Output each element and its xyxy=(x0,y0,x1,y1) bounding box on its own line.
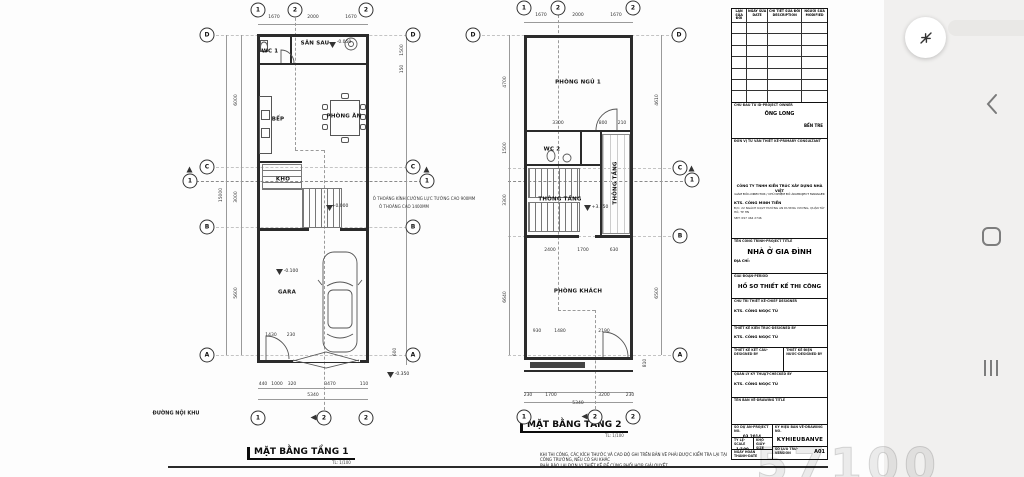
plan2-dim-label: 630 xyxy=(610,249,619,254)
plan2-grid-bubble-B: B xyxy=(673,229,688,244)
plan2-room-label: PHÒNG KHÁCH xyxy=(554,289,602,295)
plan2-dim-label: 2190 xyxy=(598,330,609,335)
plan1-line-segment xyxy=(366,34,369,363)
revision-header: CHI TIẾT SỬA ĐỔI DESCRIPTION xyxy=(768,9,802,22)
plan2-line-segment xyxy=(524,35,527,360)
plan2-line-segment xyxy=(528,168,580,198)
plan1-title: MẶT BẰNG TẦNG 1 xyxy=(247,447,355,460)
plan1-grid-bubble-1: 1 xyxy=(251,411,266,426)
section-arrow-icon xyxy=(688,166,694,172)
plan1-dim-label: 5600 xyxy=(235,287,240,298)
plan1-line-segment xyxy=(257,161,302,163)
period-label: GIAI ĐOẠN-PERIOD xyxy=(732,274,827,279)
revision-table: LẦN SỬA ĐỔINGÀY SỬA DATECHI TIẾT SỬA ĐỔI… xyxy=(732,9,827,102)
plan1-line-segment xyxy=(258,24,368,25)
plan2-room-label: THÔNG TẦNG xyxy=(538,197,581,203)
screenshot-root: 1670200016701500060003000560015001506001… xyxy=(0,0,1024,477)
door-arc xyxy=(596,109,617,130)
struct-label: THIẾT KẾ KẾT CẤU-DESIGNED BY xyxy=(732,348,783,357)
consultant-label: ĐƠN VỊ TƯ VẤN THIẾT KẾ-PRIMARY CONSULTAN… xyxy=(732,139,827,144)
revision-row xyxy=(732,90,827,101)
struct-mep-section: THIẾT KẾ KẾT CẤU-DESIGNED BY THIẾT KẾ ĐI… xyxy=(732,347,827,371)
plan1-grid-bubble-A: A xyxy=(406,348,421,363)
plan2-dim-label: 4700 xyxy=(504,76,509,87)
plan1-line-segment xyxy=(340,228,369,231)
collapse-fullscreen-button[interactable] xyxy=(905,17,946,58)
plan2-title: MẶT BẰNG TẦNG 2 xyxy=(520,420,628,433)
plan2-dim-label: 4610 xyxy=(656,94,661,105)
car-roof xyxy=(328,290,352,328)
plan1-lvl-label: -0.350 xyxy=(395,373,410,378)
plan2-dim-label: 3300 xyxy=(504,194,509,205)
plan2-grid-bubble-2: 2 xyxy=(626,410,641,425)
project-no-label: SỐ DỰ ÁN-PROJECT NO. xyxy=(732,425,772,434)
plan1-grid-bubble-1: 1 xyxy=(420,174,435,189)
plan2-line-segment xyxy=(595,235,633,238)
plan1-line-segment xyxy=(241,35,242,355)
scale-label: TỶ LỆ-SCALE xyxy=(732,438,753,447)
plan2-grid-bubble-2: 2 xyxy=(551,1,566,16)
plan2-dim-label: 6500 xyxy=(656,287,661,298)
plan2-dim-label: 1670 xyxy=(610,14,621,19)
plan2-lvl-label: +3.750 xyxy=(592,206,609,211)
plan1-line-segment xyxy=(322,124,328,130)
plan1-line-segment xyxy=(257,34,260,363)
plan-graphics xyxy=(0,0,1024,477)
plan2-grid-bubble-A: A xyxy=(673,348,688,363)
note-line: PHẢI BÁO LẠI ĐƠN VỊ THIẾT KẾ ĐỂ CÙNG PHỐ… xyxy=(540,463,735,468)
plan1-line-segment xyxy=(258,388,368,389)
plan2-grid-bubble-1: 1 xyxy=(685,173,700,188)
plan2-dim-label: 1480 xyxy=(554,330,565,335)
revision-row xyxy=(732,56,827,67)
revision-header: LẦN SỬA ĐỔI xyxy=(732,9,747,22)
plan2-grid-bubble-1: 1 xyxy=(517,1,532,16)
plan2-line-segment xyxy=(524,22,633,23)
plan1-room-label: SÂN SAU xyxy=(301,41,330,47)
plan1-line-segment xyxy=(360,104,366,110)
revision-header: NGƯỜI SỬA MODIFIED xyxy=(802,9,827,22)
plan1-grid-bubble-C: C xyxy=(200,160,215,175)
plan2-dim-label: 6640 xyxy=(504,291,509,302)
project-label: TÊN CÔNG TRÌNH-PROJECT TITLE xyxy=(732,239,827,244)
plan1-dim-label: 5340 xyxy=(307,394,318,399)
period-section: GIAI ĐOẠN-PERIOD HỒ SƠ THIẾT KẾ THI CÔNG xyxy=(732,273,827,298)
owner-name: ÔNG LONG xyxy=(732,111,827,117)
plan2-dim-label: 1700 xyxy=(577,249,588,254)
plan1-room-label: GARA xyxy=(278,290,296,296)
plan2-line-segment xyxy=(524,370,633,372)
nav-home-button[interactable] xyxy=(982,227,1001,246)
project-no-value: 03.2014 xyxy=(732,434,772,437)
plan1-grid-bubble-2: 2 xyxy=(359,411,374,426)
arch-name: KTS. CÔNG NGỌC TÚ xyxy=(734,334,825,339)
revision-row xyxy=(732,45,827,56)
collapse-arrows-icon xyxy=(916,28,936,48)
plan1-room-label: BẾP xyxy=(272,117,285,123)
plan1-line-segment xyxy=(261,110,270,120)
plan1-dim-label: 1500 xyxy=(401,44,406,55)
plan1-lvl-label: +0.000 xyxy=(332,205,349,210)
plan2-dim-label: 210 xyxy=(618,122,627,127)
plan2-line-segment xyxy=(528,202,580,232)
plan1-dim-label: 150 xyxy=(401,65,406,74)
plan2-dim-label: 1500 xyxy=(504,142,509,153)
period-name: HỒ SƠ THIẾT KẾ THI CÔNG xyxy=(732,284,827,290)
plan2-line-segment xyxy=(580,130,582,166)
plan1-street-label: ĐƯỜNG NỘI KHU xyxy=(153,412,200,417)
revision-row xyxy=(732,33,827,44)
plan2-grid-bubble-1: 1 xyxy=(517,410,532,425)
plan1-grid-bubble-B: B xyxy=(406,220,421,235)
plan1-dim-label: 110 xyxy=(360,383,369,388)
plan1-grid-bubble-2: 2 xyxy=(288,3,303,18)
plan2-dim-label: 230 xyxy=(524,394,533,399)
car-body xyxy=(323,252,357,352)
plan2-line-segment xyxy=(558,310,595,311)
plan1-note-label: Ô THOÁNG CAO 1400MM xyxy=(379,205,429,209)
nav-back-button[interactable] xyxy=(984,92,1002,116)
plan2-line-segment xyxy=(630,35,633,360)
plan2-line-segment xyxy=(530,362,585,368)
plan1-line-segment xyxy=(341,137,349,143)
section-arrow-icon xyxy=(311,415,317,421)
section-arrow-icon xyxy=(423,167,429,173)
plan1-line-segment xyxy=(360,124,366,130)
plan1-line-segment xyxy=(257,228,309,231)
plan1-dim-label: 15000 xyxy=(220,188,225,202)
plan1-grid-bubble-2: 2 xyxy=(317,411,332,426)
plan2-grid-bubble-2: 2 xyxy=(626,1,641,16)
plan2-room-label: WC 2 xyxy=(544,147,561,153)
plan2-grid-bubble-D: D xyxy=(466,28,481,43)
plan2-dim-label: 930 xyxy=(533,330,542,335)
plan1-dim-label: 1670 xyxy=(345,16,356,21)
drawing-title-label: TÊN BẢN VẼ-DRAWING TITLE xyxy=(732,398,827,403)
plan1-line-segment xyxy=(257,63,367,65)
toast-remnant xyxy=(948,20,1024,36)
note-line: KHI THI CÔNG, CÁC KÍCH THƯỚC VÀ CAO ĐỘ G… xyxy=(540,452,735,463)
plan2-line-segment xyxy=(524,357,633,360)
plan1-room-label: PHÒNG ĂN xyxy=(327,114,362,120)
plan1-line-segment xyxy=(341,93,349,99)
qa-label: QUẢN LÝ KỸ THUẬT-CHECKED BY xyxy=(732,372,827,377)
plan1-line-segment xyxy=(226,35,227,355)
plan1-line-segment xyxy=(258,399,368,400)
plan2-dim-label: 2000 xyxy=(572,14,583,19)
drawing-page[interactable]: 1670200016701500060003000560015001506001… xyxy=(0,0,884,477)
project-address-label: ĐỊA CHỈ: xyxy=(734,259,825,263)
plan1-line-segment xyxy=(216,355,412,356)
plan1-line-segment xyxy=(257,34,369,37)
owner-label: CHỦ ĐẦU TƯ ID-PROJECT OWNER xyxy=(732,103,827,108)
plan1-dim-label: 440 xyxy=(259,383,268,388)
plan1-line-segment xyxy=(290,34,292,65)
plan2-grid-bubble-C: C xyxy=(673,161,688,176)
plan1-line-segment xyxy=(322,104,328,110)
plan1-grid-bubble-C: C xyxy=(406,160,421,175)
qa-section: QUẢN LÝ KỸ THUẬT-CHECKED BY KTS. CÔNG NG… xyxy=(732,371,827,397)
plan2-dim-label: 1700 xyxy=(545,394,556,399)
plan2-line-segment xyxy=(524,164,602,166)
plan1-dim-label: 6000 xyxy=(235,94,240,105)
consultant-roles: GIÁM ĐỐC-DIRECTOR / CHỦ NHIỆM ĐỒ ÁN-PROJ… xyxy=(732,193,827,196)
consultant-architect: KTS. CÔNG MINH TIẾN xyxy=(734,200,825,205)
plan1-grid-bubble-D: D xyxy=(406,28,421,43)
plan1-grid-bubble-2: 2 xyxy=(359,3,374,18)
plan1-dim-label: 1430 xyxy=(265,334,276,339)
plan2-line-segment xyxy=(558,10,559,310)
plan1-lvl-label: -0.100 xyxy=(284,270,299,275)
owner-location: BẾN TRE xyxy=(732,123,827,128)
owner-section: CHỦ ĐẦU TƯ ID-PROJECT OWNER ÔNG LONG BẾN… xyxy=(732,102,827,139)
consultant-address: Đ/C: 22 NGÁCH 64/27 ĐƯỜNG AN DƯƠNG VƯƠNG… xyxy=(734,207,825,215)
revision-row xyxy=(732,22,827,33)
plan2-scale: TL: 1/100 xyxy=(605,433,624,438)
plan1-grid-bubble-D: D xyxy=(200,28,215,43)
title-block: LẦN SỬA ĐỔINGÀY SỬA DATECHI TIẾT SỬA ĐỔI… xyxy=(731,8,828,460)
plan2-dim-label: 2400 xyxy=(544,249,555,254)
plan1-room-label: KHO xyxy=(276,177,290,183)
project-name: NHÀ Ở GIA ĐÌNH xyxy=(732,248,827,256)
plan2-dim-label: 5340 xyxy=(572,402,583,407)
arch-design-section: THIẾT KẾ KIẾN TRÚC-DESIGNED BY KTS. CÔNG… xyxy=(732,325,827,348)
plan1-dim-label: 320 xyxy=(288,383,297,388)
drawing-title-section: TÊN BẢN VẼ-DRAWING TITLE xyxy=(732,397,827,424)
plan2-line-segment xyxy=(661,35,662,355)
plan1-line-segment xyxy=(216,167,412,168)
plan2-line-segment xyxy=(524,35,633,38)
plan2-dim-label: 3200 xyxy=(598,394,609,399)
plan1-dim-label: 1670 xyxy=(268,16,279,21)
plan1-line-segment xyxy=(257,362,369,363)
plan1-dim-label: 600 xyxy=(394,348,399,357)
arch-label: THIẾT KẾ KIẾN TRÚC-DESIGNED BY xyxy=(732,326,827,331)
plan1-line-segment xyxy=(295,150,324,151)
plan2-line-segment xyxy=(524,130,633,132)
plan1-dim-label: 1000 xyxy=(271,383,282,388)
plan1-grid-bubble-A: A xyxy=(200,348,215,363)
watermark-text: 57100 xyxy=(756,438,941,477)
plan1-lvl-label: -0.050 xyxy=(337,41,352,46)
android-side-panel xyxy=(884,0,1024,477)
plan1-line-segment xyxy=(196,181,432,182)
section-arrow-icon xyxy=(582,414,588,420)
plan2-room-label: PHÒNG NGỦ 1 xyxy=(555,80,601,86)
revision-header: NGÀY SỬA DATE xyxy=(747,9,768,22)
plan1-note-label: Ô THOÁNG KÍNH CƯỜNG LỰC TƯỜNG CAO 900MM xyxy=(373,197,475,201)
section-arrow-icon xyxy=(186,167,192,173)
revision-row xyxy=(732,68,827,79)
plan2-grid-bubble-D: D xyxy=(672,28,687,43)
cad-sheet: 1670200016701500060003000560015001506001… xyxy=(0,0,884,477)
plan1-room-label: WC 1 xyxy=(262,49,279,55)
plan2-dim-label: 1670 xyxy=(535,14,546,19)
nav-recents-button[interactable] xyxy=(984,360,998,376)
plan2-dim-label: 3300 xyxy=(552,122,563,127)
plan1-dim-label: 230 xyxy=(287,334,296,339)
plan1-dim-label: 3000 xyxy=(235,191,240,202)
plan2-line-segment xyxy=(524,392,633,393)
plan1-dim-label: 2000 xyxy=(307,16,318,21)
plan1-grid-bubble-B: B xyxy=(200,220,215,235)
consultant-phone: SĐT: 097 464 2746 xyxy=(734,217,825,221)
back-chevron-icon xyxy=(984,92,1000,116)
plan2-dim-label: 230 xyxy=(626,394,635,399)
chief-label: CHỦ TRÌ THIẾT KẾ-CHIEF DESIGNER xyxy=(732,299,827,304)
plan2-line-segment xyxy=(524,235,579,238)
plan1-scale: TL: 1/100 xyxy=(332,460,351,465)
door-arc xyxy=(281,50,294,63)
plan2-line-segment xyxy=(508,355,676,356)
plan2-dim-label: 800 xyxy=(599,122,608,127)
chief-designer-section: CHỦ TRÌ THIẾT KẾ-CHIEF DESIGNER KTS. CÔN… xyxy=(732,298,827,325)
plan1-dim-label: 3470 xyxy=(324,383,335,388)
plan2-dim-label: 810 xyxy=(644,359,649,368)
sink-icon xyxy=(563,154,571,162)
plan2-room-label: THÔNG TẦNG xyxy=(613,161,619,204)
plan1-grid-bubble-1: 1 xyxy=(251,3,266,18)
chief-name: KTS. CÔNG NGỌC TÚ xyxy=(734,308,825,313)
mep-label: THIẾT KẾ ĐIỆN NƯỚC-DESIGNED BY xyxy=(784,348,827,357)
door-arc xyxy=(603,332,628,357)
plan2-line-segment xyxy=(595,310,596,414)
general-notes: KHI THI CÔNG, CÁC KÍCH THƯỚC VÀ CAO ĐỘ G… xyxy=(540,452,735,468)
plan1-line-segment xyxy=(295,8,296,150)
revision-row xyxy=(732,79,827,90)
plan1-line-segment xyxy=(261,128,270,138)
qa-name: KTS. CÔNG NGỌC TÚ xyxy=(734,381,825,386)
drawing-no-label: KÝ HIỆU BẢN VẼ-DRAWING NO. xyxy=(773,425,827,434)
plan1-line-segment xyxy=(259,96,272,154)
plan2-line-segment xyxy=(509,35,510,355)
door-arc xyxy=(266,336,289,360)
plan1-grid-bubble-1: 1 xyxy=(183,174,198,189)
consultant-section: ĐƠN VỊ TƯ VẤN THIẾT KẾ-PRIMARY CONSULTAN… xyxy=(732,138,827,238)
project-section: TÊN CÔNG TRÌNH-PROJECT TITLE NHÀ Ở GIA Đ… xyxy=(732,238,827,273)
plan2-grid-bubble-2: 2 xyxy=(588,410,603,425)
